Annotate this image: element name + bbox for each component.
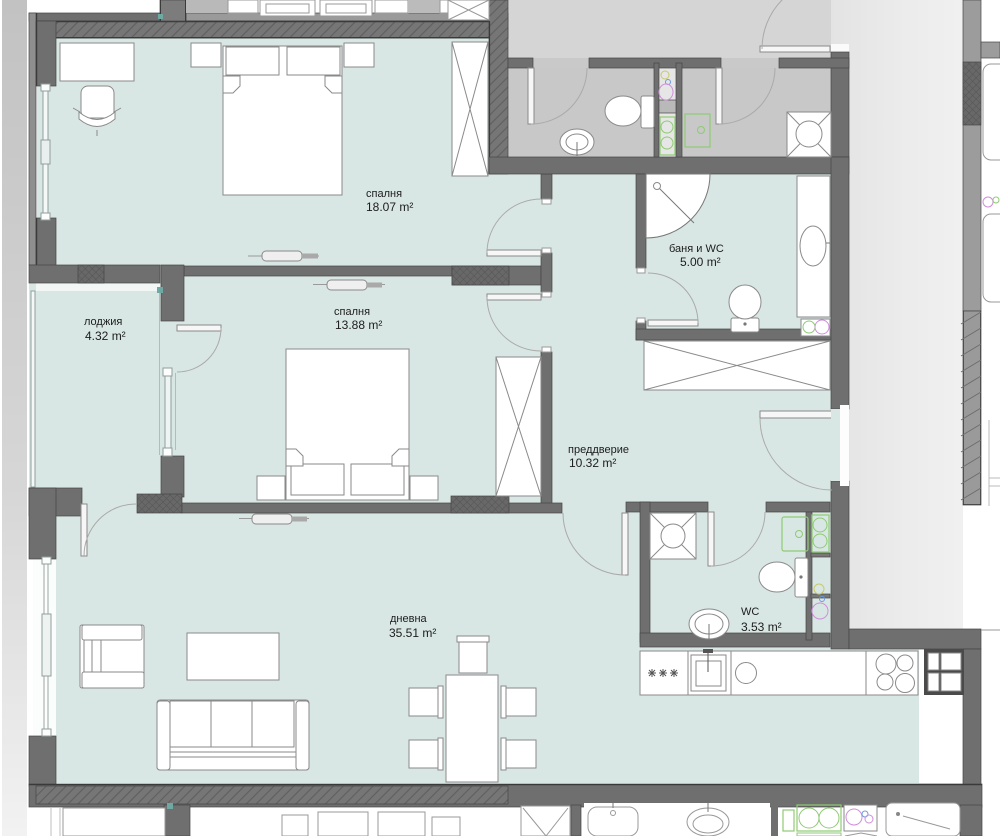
svg-text:спалня: спалня xyxy=(366,188,402,200)
svg-text:спалня: спалня xyxy=(334,306,370,318)
svg-text:WC: WC xyxy=(741,606,759,618)
svg-text:10.32 m²: 10.32 m² xyxy=(569,456,616,470)
svg-text:лоджия: лоджия xyxy=(84,316,122,328)
svg-text:баня и WC: баня и WC xyxy=(669,243,724,255)
svg-text:18.07 m²: 18.07 m² xyxy=(366,200,413,214)
svg-text:3.53 m²: 3.53 m² xyxy=(741,620,782,634)
svg-text:35.51 m²: 35.51 m² xyxy=(389,626,436,640)
svg-text:преддверие: преддверие xyxy=(568,444,629,456)
svg-text:4.32 m²: 4.32 m² xyxy=(85,329,126,343)
svg-text:5.00 m²: 5.00 m² xyxy=(680,255,721,269)
svg-text:13.88 m²: 13.88 m² xyxy=(335,318,382,332)
svg-text:дневна: дневна xyxy=(390,613,428,625)
